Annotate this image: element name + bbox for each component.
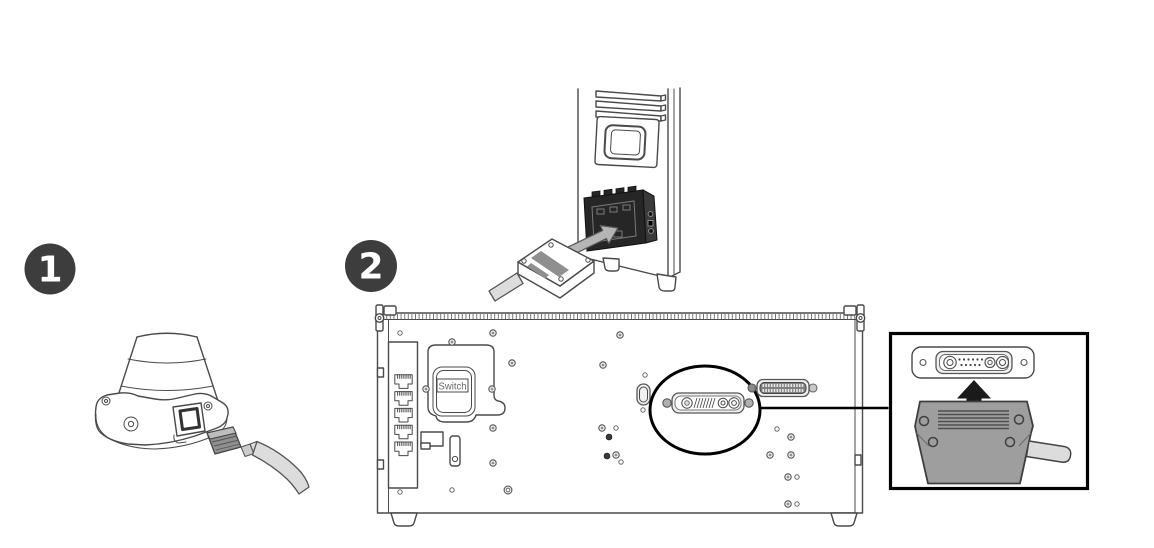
step-1-number: 1 (37, 250, 62, 291)
switch-label: Switch (439, 382, 467, 393)
control-box-illustration: Switch (375, 305, 864, 526)
base-cable-plug (207, 427, 261, 457)
connector-housing (915, 402, 1033, 484)
connector-detail-callout (891, 334, 1088, 489)
step-1-badge: 1 (25, 244, 76, 295)
step-2-number: 2 (358, 247, 383, 288)
pedestal-handle-recess (595, 116, 659, 167)
pedestal-cable (489, 273, 523, 301)
receptacle-plate (912, 347, 1034, 378)
ethernet-port-block (389, 342, 418, 488)
diagram-svg: 1 2 (0, 0, 1154, 548)
control-box-feet (391, 513, 857, 526)
step-2-badge: 2 (345, 240, 397, 292)
pedestal-illustration (489, 88, 680, 301)
instruction-diagram: 1 2 (0, 0, 1154, 548)
dsub-connector-right (748, 380, 817, 397)
robot-flange (95, 393, 228, 449)
switch-plate: Switch (428, 345, 505, 422)
combo-dsub-connector (663, 393, 753, 413)
base-cable (253, 442, 310, 495)
pedestal-feet (603, 258, 676, 291)
robot-base-illustration (95, 333, 309, 494)
robot-body (117, 333, 218, 401)
oval-connector (637, 384, 650, 405)
